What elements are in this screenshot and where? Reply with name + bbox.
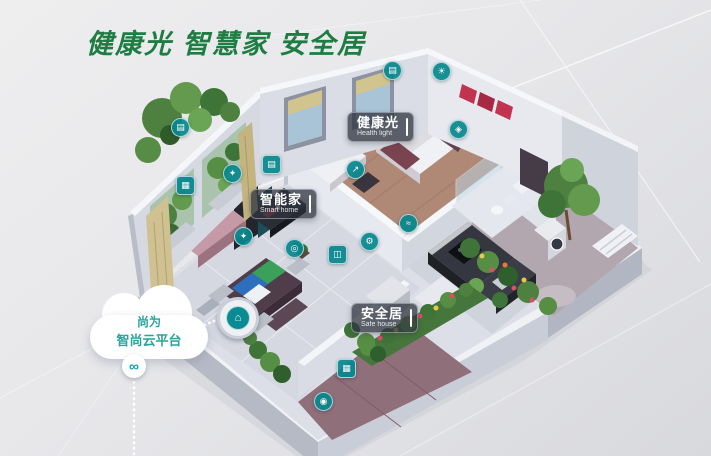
glyph: ▦ <box>342 364 351 373</box>
security-panel-icon[interactable]: ▦ <box>337 359 356 378</box>
tag-safe-house-en: Safe house <box>361 321 403 328</box>
gear-icon[interactable]: ⚙ <box>360 232 379 251</box>
door-sensor-icon[interactable]: ◫ <box>328 245 347 264</box>
cloud-platform-name: 智尚云平台 <box>116 330 181 349</box>
bedroom-curtain-icon[interactable]: ▤ <box>383 61 402 80</box>
cloud-platform: 尚为 智尚云平台 <box>90 289 208 363</box>
living-curtain-icon[interactable]: ▤ <box>171 118 190 137</box>
ceiling-light-icon[interactable]: ☀ <box>432 62 451 81</box>
tag-smart-home-zh: 智能家 <box>260 193 302 207</box>
cloud-brand: 尚为 <box>137 313 161 330</box>
glyph: ◎ <box>291 244 299 253</box>
scene-sensor-icon[interactable]: ◎ <box>285 239 304 258</box>
glyph: ◈ <box>455 125 462 134</box>
hub-icon: ⌂ <box>226 306 250 330</box>
tag-health-light-en: Health light <box>357 130 399 137</box>
glyph: ✦ <box>240 232 248 241</box>
tv-bulb-icon[interactable]: ✦ <box>234 227 253 246</box>
glyph: ▤ <box>267 160 276 169</box>
tag-safe-house: 安全居 Safe house <box>351 303 418 333</box>
tag-leader-bar <box>309 195 311 213</box>
cloud-text: 尚为 智尚云平台 <box>90 289 208 363</box>
wall-sensor-icon[interactable]: ◈ <box>449 120 468 139</box>
tag-safe-house-zh: 安全居 <box>361 307 403 321</box>
bedroom-switch-icon[interactable]: ↗ <box>346 160 365 179</box>
tag-health-light-zh: 健康光 <box>357 116 399 130</box>
glyph: ◫ <box>333 250 342 259</box>
toilet <box>491 206 503 215</box>
bedside-panel-icon[interactable]: ▤ <box>262 155 281 174</box>
apartment-render <box>0 0 711 456</box>
tag-leader-bar <box>406 118 408 136</box>
washing-machine <box>551 238 563 250</box>
glyph: ▦ <box>181 181 190 190</box>
glyph: ▤ <box>176 123 185 132</box>
smart-home-poster: 健康光 智慧家 安全居 健康光 Health light 智能家 Smart h… <box>0 0 711 456</box>
glyph: ↗ <box>352 165 360 174</box>
tag-leader-bar <box>410 309 412 327</box>
glyph: ∞ <box>129 358 139 374</box>
tag-health-light: 健康光 Health light <box>347 112 414 142</box>
glyph: ✦ <box>229 169 237 178</box>
glyph: ☀ <box>437 67 445 76</box>
hood-sensor-icon[interactable]: ≈ <box>399 214 418 233</box>
glyph: ⚙ <box>365 237 373 246</box>
gateway-hub-device[interactable]: ⌂ <box>217 297 259 339</box>
tag-smart-home: 智能家 Smart home <box>250 189 317 219</box>
glyph: ≈ <box>406 219 411 228</box>
living-switch-icon[interactable]: ▦ <box>176 176 195 195</box>
living-bulb-icon[interactable]: ✦ <box>223 164 242 183</box>
glyph: ◉ <box>320 397 328 406</box>
cloud-link-icon[interactable]: ∞ <box>122 354 146 378</box>
doorbell-icon[interactable]: ◉ <box>314 392 333 411</box>
page-title: 健康光 智慧家 安全居 <box>86 22 366 61</box>
tag-smart-home-en: Smart home <box>260 207 302 214</box>
glyph: ⌂ <box>235 312 242 324</box>
glyph: ▤ <box>388 66 397 75</box>
